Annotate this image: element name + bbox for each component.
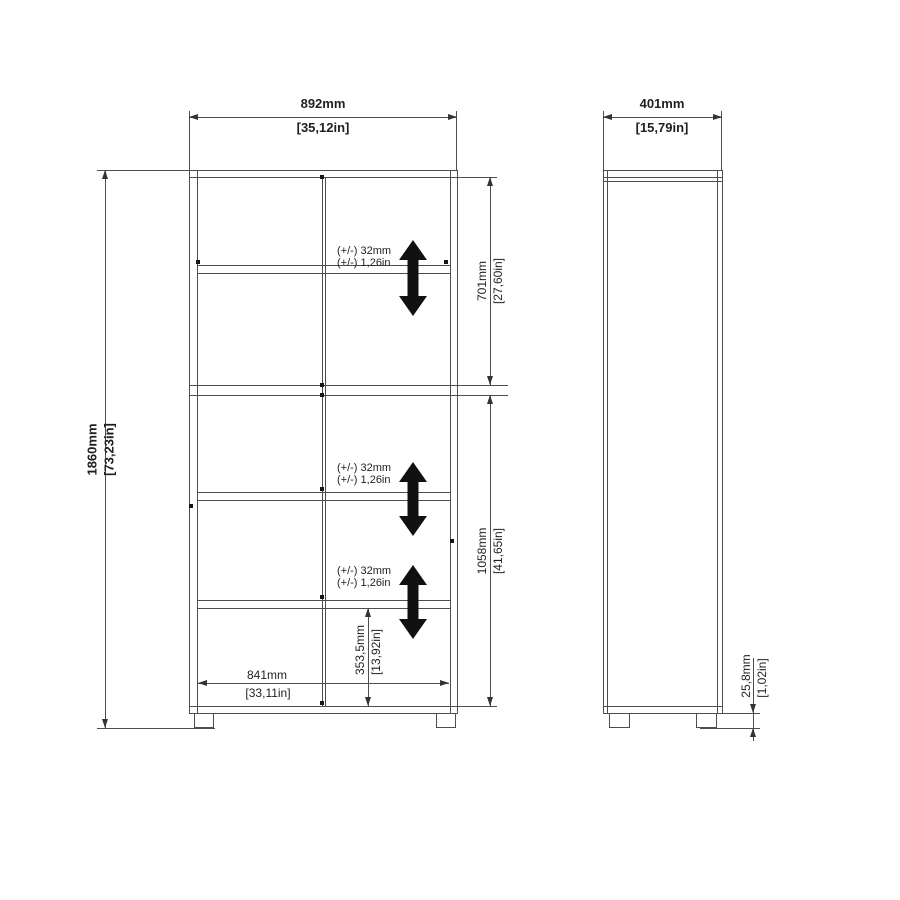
shelf-adjust-arrow-icon <box>399 462 427 536</box>
shelf-adjust-note: (+/-) 32mm (+/-) 1,26in <box>337 462 391 486</box>
shelf-adjust-arrow-icon <box>399 240 427 316</box>
shelf-pin-marker <box>320 383 324 387</box>
dimension-line-overall-width <box>189 117 457 118</box>
dimension-line-internal-width <box>198 683 449 684</box>
shelf-adjust-note: (+/-) 32mm (+/-) 1,26in <box>337 565 391 589</box>
overall-height-label-in: [73,23in] <box>102 390 117 510</box>
dimension-arrowhead <box>189 114 198 120</box>
shelf-adjust-note-in: (+/-) 1,26in <box>337 257 391 269</box>
side-front-foot <box>609 713 630 728</box>
shelf-adjust-note: (+/-) 32mm (+/-) 1,26in <box>337 245 391 269</box>
side-right-inner-line <box>717 170 718 713</box>
top-section-label-in: [27,60in] <box>491 221 505 341</box>
bottom-section-label-mm: 1058mm <box>475 491 489 611</box>
shelf-adjust-arrow-icon <box>399 565 427 639</box>
shelf-adjust-note-mm: (+/-) 32mm <box>337 565 391 577</box>
floor-extension-line <box>97 728 215 729</box>
shelf-adjust-note-mm: (+/-) 32mm <box>337 245 391 257</box>
shelf-pin-marker <box>320 595 324 599</box>
shelf-adjust-note-in: (+/-) 1,26in <box>337 474 391 486</box>
front-left-foot <box>194 713 214 728</box>
front-center-divider <box>322 177 326 706</box>
fixed-shelf-top-line <box>189 385 508 386</box>
dimension-arrowhead <box>487 376 493 385</box>
extension-line <box>457 706 497 707</box>
bottom-shelf-label-in: [13,92in] <box>369 592 383 712</box>
dimension-line-depth <box>603 117 722 118</box>
shelf-pin-marker <box>196 260 200 264</box>
shelf-pin-marker <box>320 393 324 397</box>
bookcase-technical-drawing: (+/-) 32mm (+/-) 1,26in (+/-) 32mm (+/-)… <box>0 0 900 900</box>
side-cabinet-outline <box>603 170 723 714</box>
shelf-pin-marker <box>450 539 454 543</box>
dimension-arrowhead <box>487 177 493 186</box>
shelf-pin-marker <box>320 701 324 705</box>
side-bottom-panel-line <box>603 706 722 707</box>
internal-width-label-in: [33,11in] <box>208 686 328 700</box>
side-top-panel-line <box>603 177 722 178</box>
dimension-arrowhead <box>198 680 207 686</box>
shelf-pin-marker <box>189 504 193 508</box>
side-left-inner-line <box>607 170 608 713</box>
overall-width-label-mm: 892mm <box>263 96 383 111</box>
extension-line <box>97 170 189 171</box>
foot-height-label-in: [1,02in] <box>755 618 769 738</box>
bottom-shelf-label-mm: 353,5mm <box>353 590 367 710</box>
shelf-pin-marker <box>444 260 448 264</box>
dimension-arrowhead <box>440 680 449 686</box>
dimension-arrowhead <box>102 170 108 179</box>
front-bottom-panel-inner-line <box>189 706 457 707</box>
dimension-arrowhead <box>102 719 108 728</box>
dimension-arrowhead <box>487 697 493 706</box>
side-top-panel-line <box>603 181 722 182</box>
shelf-adjust-note-in: (+/-) 1,26in <box>337 577 391 589</box>
depth-label-in: [15,79in] <box>602 120 722 135</box>
bottom-section-label-in: [41,65in] <box>491 491 505 611</box>
top-section-label-mm: 701mm <box>475 221 489 341</box>
overall-height-label-mm: 1860mm <box>85 390 100 510</box>
fixed-shelf-bottom-line <box>189 395 508 396</box>
dimension-arrowhead <box>448 114 457 120</box>
shelf-pin-marker <box>320 175 324 179</box>
internal-width-label-mm: 841mm <box>207 668 327 682</box>
shelf-adjust-note-mm: (+/-) 32mm <box>337 462 391 474</box>
front-left-panel-inner-line <box>197 170 198 713</box>
overall-width-label-in: [35,12in] <box>263 120 383 135</box>
shelf-pin-marker <box>320 487 324 491</box>
front-right-foot <box>436 713 456 728</box>
dimension-arrowhead <box>487 395 493 404</box>
foot-height-label-mm: 25,8mm <box>739 616 753 736</box>
front-right-panel-inner-line <box>450 170 451 713</box>
depth-label-mm: 401mm <box>602 96 722 111</box>
side-back-foot <box>696 713 717 728</box>
